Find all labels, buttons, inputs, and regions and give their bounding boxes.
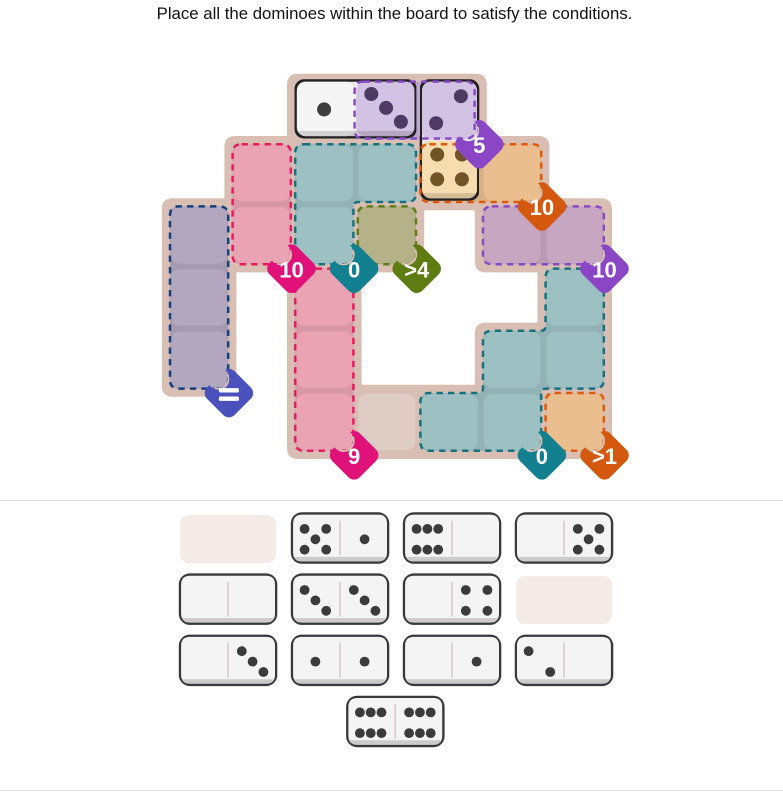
svg-text:>1: >1 <box>592 444 617 469</box>
svg-text:10: 10 <box>592 257 616 282</box>
svg-text:10: 10 <box>279 257 303 282</box>
svg-text:5: 5 <box>473 133 485 158</box>
svg-text:>4: >4 <box>404 257 430 282</box>
svg-text:10: 10 <box>530 195 554 220</box>
svg-text:9: 9 <box>348 444 360 469</box>
svg-text:0: 0 <box>536 444 548 469</box>
svg-text:0: 0 <box>348 257 360 282</box>
